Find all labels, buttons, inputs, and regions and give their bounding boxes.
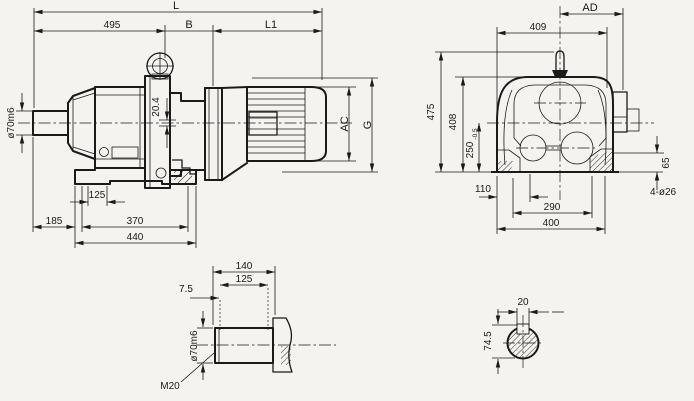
dim-bottom: 125 185 370 440	[33, 137, 196, 248]
dim-shaft-dia: ø70m6	[189, 311, 213, 380]
dim-475-label: 475	[426, 103, 437, 120]
dim-AC-label: AC	[339, 116, 351, 131]
dim-250: 250 -0.5	[465, 123, 479, 172]
dim-shaft-label: ø70m6	[189, 330, 200, 362]
gear-motor-dimension-drawing: 20.4	[0, 0, 694, 401]
dim-top: L 495 B L1	[34, 0, 322, 108]
shaft-body	[215, 328, 273, 363]
dim-408-label: 408	[448, 113, 459, 130]
dim-370-label: 370	[127, 216, 144, 227]
dim-65: 65	[613, 136, 672, 190]
side-view: 20.4	[6, 0, 378, 248]
dim-409: 409	[497, 22, 607, 112]
dim-ac-g: AC G	[252, 78, 378, 172]
dim-290-label: 290	[544, 202, 561, 213]
dim-7-5-label: 7.5	[179, 284, 193, 295]
dim-125-label: 125	[236, 274, 253, 285]
dim-20-label: 20	[517, 297, 529, 308]
dim-110: 110	[475, 174, 548, 234]
dim-thread-label: M20	[160, 381, 180, 392]
dim-key-label: 20.4	[151, 97, 162, 117]
dim-B-label: B	[185, 19, 192, 31]
dim-400-label: 400	[543, 218, 560, 229]
shaft-detail-view: 140 125 7.5 ø70m6 M20	[160, 261, 336, 392]
dim-140-label: 140	[236, 261, 253, 272]
dim-20: 20	[497, 297, 564, 326]
drain-plug	[156, 168, 166, 178]
dim-key-height: 20.4	[151, 97, 176, 148]
dim-140: 140	[213, 261, 275, 325]
motor-body	[247, 87, 326, 161]
foot-left	[497, 150, 520, 172]
dim-290: 290	[513, 176, 592, 218]
shaft-section-view: 20 74.5	[483, 297, 564, 374]
motor	[247, 87, 326, 161]
dim-475: 475	[426, 52, 554, 172]
oil-plug	[100, 148, 109, 157]
end-view: AD 409 475 408 250 -0.5 110	[426, 2, 676, 234]
dim-AD-label: AD	[582, 2, 597, 14]
dim-250-label: 250	[465, 141, 476, 158]
flange-plate	[145, 76, 170, 188]
dim-409-label: 409	[530, 22, 547, 33]
dim-L-label: L	[173, 0, 179, 12]
dim-L1-label: L1	[265, 19, 277, 31]
dim-74-5-label: 74.5	[483, 331, 494, 351]
dim-250-tol-label: -0.5	[472, 128, 479, 140]
dim-110-label: 110	[475, 184, 491, 195]
dim-440-label: 440	[127, 232, 144, 243]
dim-shaft-label: ø70m6	[6, 107, 17, 139]
dim-495-label: 495	[104, 20, 121, 31]
dim-125: 125	[220, 274, 268, 285]
foot-right	[590, 149, 613, 172]
side-shaft-section	[613, 92, 639, 132]
dim-408: 408	[448, 77, 522, 172]
gearbox-nose	[68, 88, 95, 159]
motor-fins	[247, 87, 305, 161]
dim-thread: M20	[160, 353, 214, 392]
terminal-box	[249, 112, 277, 135]
nameplate	[112, 147, 138, 158]
dim-holes-label: 4-ø26	[650, 187, 677, 198]
drawing-canvas: 20.4	[0, 0, 694, 401]
mounting-foot	[75, 160, 196, 184]
dim-185-label: 185	[46, 216, 63, 227]
dim-125-label: 125	[89, 190, 106, 201]
dim-65-label: 65	[661, 157, 672, 169]
dim-G-label: G	[362, 121, 374, 130]
